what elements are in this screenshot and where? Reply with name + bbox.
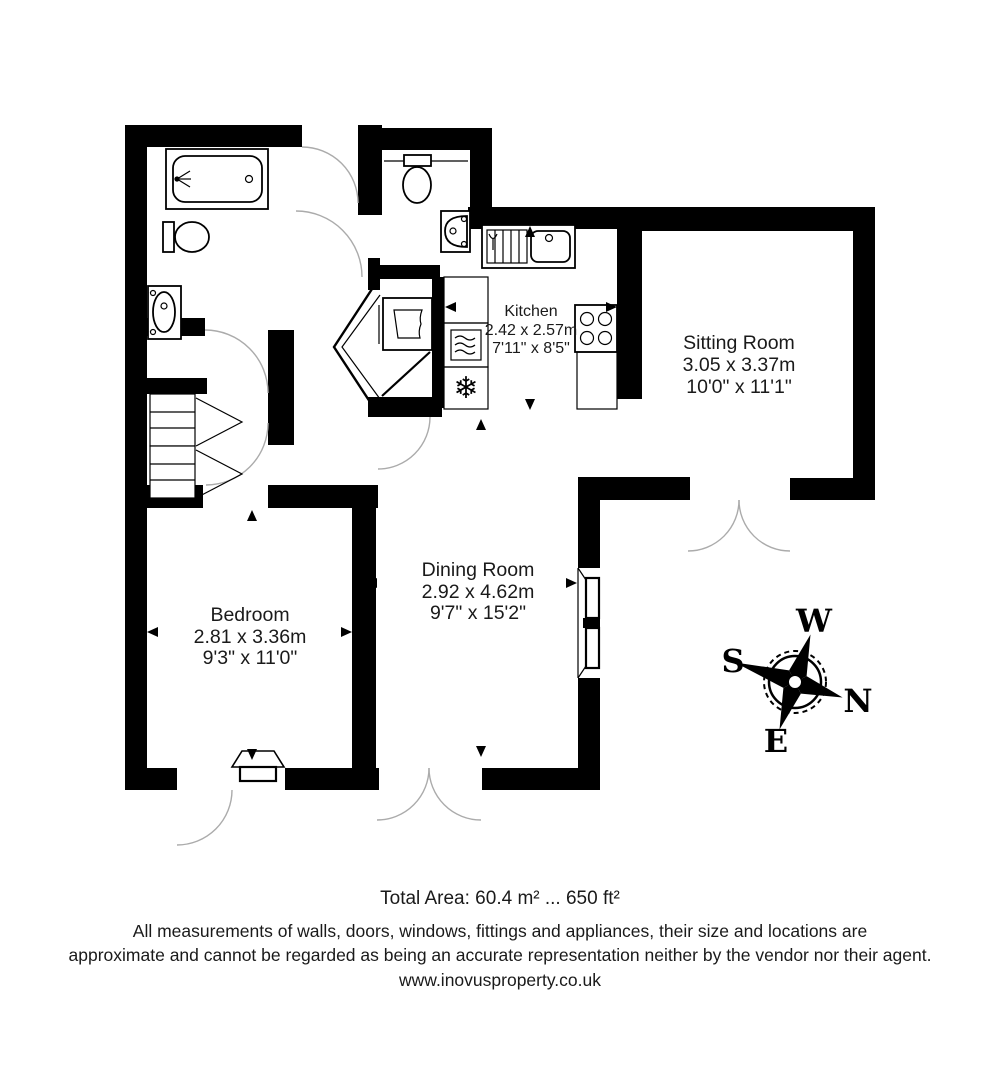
room-label-kitchen: Kitchen 2.42 x 2.57m 7'11" x 8'5" [485,303,578,357]
sitting-french-door-right-arc [739,500,790,551]
room-label-dining-room: Dining Room 2.92 x 4.62m 9'7" x 15'2" [422,559,535,624]
snowflake-icon: ❄ [453,371,478,406]
entry-door-arc [302,147,358,203]
room-size-metric: 2.92 x 4.62m [422,581,535,603]
compass-label-west: W [795,602,833,640]
hall-dining-door-arc [378,417,430,469]
disclaimer-line-1: All measurements of walls, doors, window… [133,921,867,941]
compass-label-south: S [721,642,744,680]
bedroom-patio-door-arc [177,790,232,845]
room-size-metric: 3.05 x 3.37m [683,354,796,376]
room-name: Sitting Room [683,332,795,354]
basin-icon [441,211,470,252]
boiler-icon [379,298,432,350]
wc-door-arc [296,211,362,277]
dining-double-door-right-arc [429,768,481,820]
floor-plan: ❄ Kitchen 2.42 x 2.57m 7'11" x 8'5" Sitt… [0,0,1001,1080]
closet-bifold-icon [196,398,242,446]
cupboard-door-leaf [382,352,430,396]
room-name: Bedroom [210,604,289,626]
closet-shelves [150,394,195,498]
compass-label-east: E [764,722,788,760]
dining-double-door-left-arc [377,768,429,820]
room-size-imperial: 7'11" x 8'5" [492,340,570,357]
sitting-french-door-left-arc [688,500,739,551]
total-area-text: Total Area: 60.4 m² ... 650 ft² [380,888,620,909]
room-label-bedroom: Bedroom 2.81 x 3.36m 9'3" x 11'0" [194,604,307,669]
toilet-icon [403,155,431,203]
room-size-metric: 2.42 x 2.57m [485,322,578,339]
compass-rose: W N E S [721,602,872,760]
room-label-sitting-room: Sitting Room 3.05 x 3.37m 10'0" x 11'1" [683,332,796,398]
website-url: www.inovusproperty.co.uk [398,970,601,990]
bathtub-icon [166,149,268,209]
cupboard-bifold-icon [342,295,380,399]
room-size-imperial: 9'3" x 11'0" [203,647,298,669]
compass-label-north: N [843,682,872,720]
freezer-icon: ❄ [444,367,488,409]
bedroom-window [232,751,284,781]
room-size-imperial: 10'0" x 11'1" [686,376,792,398]
microwave-icon [444,323,488,367]
room-name: Dining Room [422,559,535,581]
room-size-metric: 2.81 x 3.36m [194,626,307,648]
footer: Total Area: 60.4 m² ... 650 ft² All meas… [69,888,932,990]
basin-icon [148,286,181,339]
bedroom-door-arc [206,423,268,485]
disclaimer-line-2: approximate and cannot be regarded as be… [69,945,932,965]
bathroom-door-arc [205,330,268,393]
kitchen-units: ❄ [444,277,488,409]
hob-icon [575,305,617,409]
dining-bay-window [578,568,600,678]
toilet-icon [163,222,209,252]
room-name: Kitchen [504,303,557,320]
room-size-imperial: 9'7" x 15'2" [430,602,526,624]
cupboard-bifold-icon [334,289,372,405]
